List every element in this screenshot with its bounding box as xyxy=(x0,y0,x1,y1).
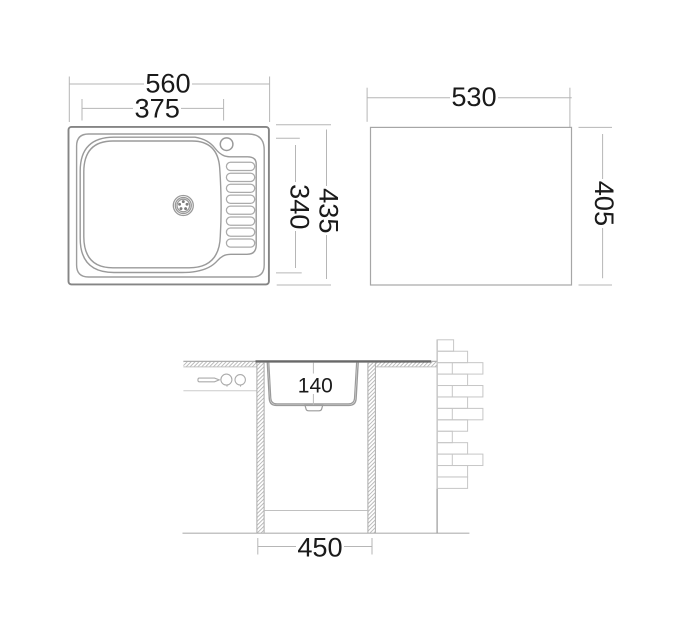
svg-text:405: 405 xyxy=(589,181,620,226)
svg-text:140: 140 xyxy=(298,374,333,397)
svg-text:450: 450 xyxy=(297,531,342,562)
svg-text:530: 530 xyxy=(451,81,496,112)
svg-text:375: 375 xyxy=(135,92,180,123)
svg-text:435: 435 xyxy=(314,188,345,233)
svg-text:340: 340 xyxy=(284,184,315,229)
